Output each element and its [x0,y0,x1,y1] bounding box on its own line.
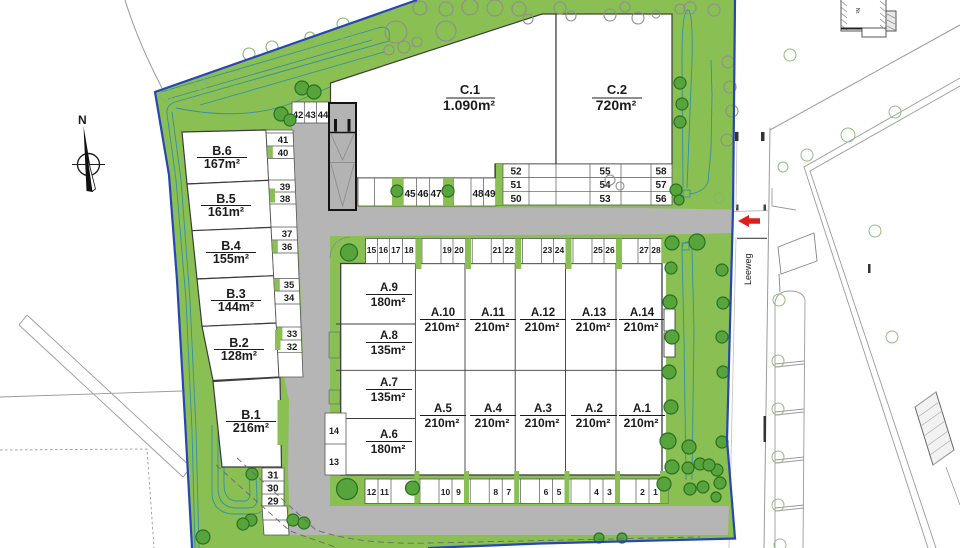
svg-text:A.9: A.9 [380,282,398,294]
svg-text:A.3: A.3 [534,403,552,415]
svg-text:49: 49 [484,189,496,200]
svg-text:35: 35 [284,280,295,291]
svg-text:210m²: 210m² [475,416,510,430]
svg-text:1: 1 [653,487,658,497]
svg-text:17: 17 [391,245,401,255]
svg-text:10: 10 [441,487,451,497]
svg-text:57: 57 [655,180,667,191]
svg-text:33: 33 [287,329,298,340]
svg-text:B.2: B.2 [229,336,249,350]
svg-text:N: N [78,113,87,127]
svg-text:14: 14 [329,426,339,436]
svg-text:56: 56 [655,194,667,205]
svg-text:24: 24 [555,245,565,255]
svg-text:A.4: A.4 [484,403,503,415]
svg-text:180m²: 180m² [371,442,406,456]
svg-text:27: 27 [639,245,649,255]
svg-text:210m²: 210m² [576,416,611,430]
svg-text:155m²: 155m² [213,252,249,266]
svg-text:216m²: 216m² [233,421,269,435]
svg-text:A.5: A.5 [434,403,453,415]
svg-text:210m²: 210m² [525,320,560,334]
svg-text:B.1: B.1 [241,408,261,422]
svg-text:43: 43 [305,110,316,121]
svg-text:8: 8 [493,487,498,497]
svg-text:50: 50 [510,194,522,205]
svg-text:135m²: 135m² [371,390,406,404]
svg-text:720m²: 720m² [596,97,637,113]
svg-text:210m²: 210m² [576,320,611,334]
svg-text:210m²: 210m² [425,320,460,334]
svg-text:128m²: 128m² [221,349,257,363]
svg-text:4: 4 [594,487,599,497]
svg-text:210m²: 210m² [624,320,659,334]
svg-text:32: 32 [287,342,298,353]
svg-text:51: 51 [510,180,522,191]
svg-text:31: 31 [267,471,279,482]
svg-text:180m²: 180m² [371,295,406,309]
svg-text:A.10: A.10 [431,307,455,319]
svg-text:3: 3 [607,487,612,497]
svg-text:B.5: B.5 [216,192,236,206]
svg-text:40: 40 [278,148,289,159]
svg-text:A.8: A.8 [380,330,399,342]
svg-text:135m²: 135m² [371,343,406,357]
svg-text:19: 19 [442,245,452,255]
svg-text:48: 48 [472,189,484,200]
svg-text:34: 34 [284,293,295,304]
svg-text:A.6: A.6 [380,429,398,441]
svg-text:C.2: C.2 [607,82,627,97]
svg-text:13: 13 [329,457,339,467]
svg-text:16: 16 [379,245,389,255]
svg-text:21: 21 [492,245,502,255]
svg-text:210m²: 210m² [525,416,560,430]
svg-text:B.6: B.6 [212,144,232,158]
svg-text:6: 6 [544,487,549,497]
svg-text:37: 37 [282,229,293,240]
svg-text:47: 47 [430,189,442,200]
svg-text:9: 9 [456,487,461,497]
svg-text:2: 2 [640,487,645,497]
svg-text:A.1: A.1 [633,403,652,415]
svg-text:52: 52 [510,167,522,178]
svg-text:36: 36 [282,242,293,253]
svg-text:23: 23 [543,245,553,255]
svg-text:210m²: 210m² [425,416,460,430]
svg-text:41: 41 [278,135,289,146]
svg-text:A.13: A.13 [582,307,606,319]
svg-text:210m²: 210m² [475,320,510,334]
svg-text:Leeweg: Leeweg [743,253,753,285]
svg-text:58: 58 [655,167,667,178]
svg-text:45: 45 [404,189,416,200]
svg-text:5: 5 [557,487,562,497]
svg-text:167m²: 167m² [204,157,240,171]
svg-text:20: 20 [454,245,464,255]
svg-text:A.7: A.7 [380,377,398,389]
svg-text:44: 44 [318,110,329,121]
svg-text:161m²: 161m² [208,205,244,219]
svg-text:210m²: 210m² [624,416,659,430]
svg-text:A.14: A.14 [630,307,655,319]
svg-text:25: 25 [593,245,603,255]
svg-text:B.3: B.3 [226,287,246,301]
svg-text:A.12: A.12 [531,307,555,319]
svg-text:A.11: A.11 [481,307,505,319]
svg-text:A.2: A.2 [585,403,603,415]
svg-text:Nr.: Nr. [854,8,860,14]
svg-text:53: 53 [599,194,611,205]
svg-text:22: 22 [504,245,514,255]
svg-text:39: 39 [280,182,291,193]
svg-text:30: 30 [267,484,279,495]
svg-text:28: 28 [651,245,661,255]
svg-text:12: 12 [367,487,377,497]
svg-text:C.1: C.1 [460,82,480,97]
svg-text:11: 11 [380,487,389,497]
svg-text:15: 15 [367,245,377,255]
svg-text:38: 38 [280,194,291,205]
svg-text:46: 46 [417,189,429,200]
svg-text:144m²: 144m² [218,300,254,314]
svg-text:26: 26 [605,245,615,255]
svg-text:B.4: B.4 [221,239,241,253]
svg-text:7: 7 [506,487,511,497]
svg-text:1.090m²: 1.090m² [443,97,495,113]
svg-text:18: 18 [404,245,414,255]
svg-text:55: 55 [599,167,611,178]
